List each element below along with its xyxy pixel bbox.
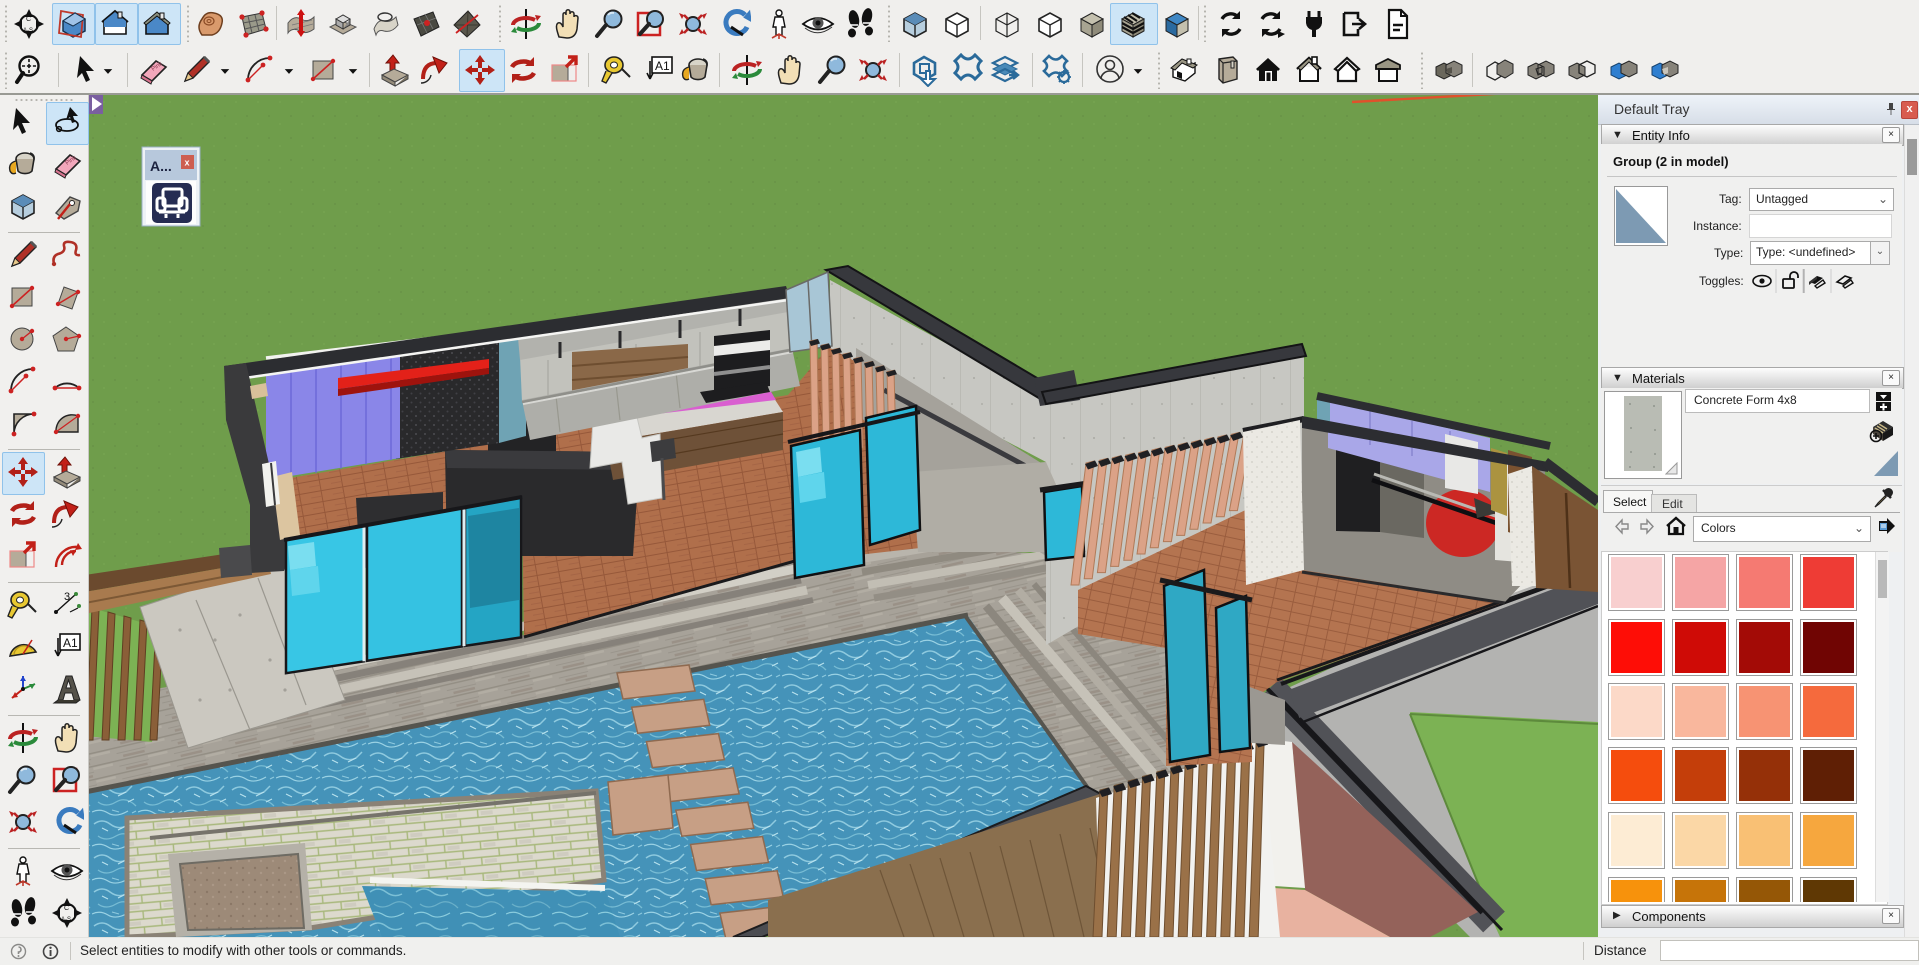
svg-text:A-S: A-S bbox=[61, 917, 71, 923]
svg-text:C: C bbox=[64, 905, 69, 912]
svg-text:A...: A... bbox=[150, 158, 172, 174]
svg-text:A1: A1 bbox=[655, 59, 670, 73]
svg-text:A1: A1 bbox=[63, 636, 78, 650]
svg-text:3: 3 bbox=[64, 591, 70, 603]
svg-text:A-S: A-S bbox=[23, 28, 33, 34]
svg-text:C: C bbox=[26, 16, 31, 23]
svg-text:x: x bbox=[185, 158, 190, 168]
